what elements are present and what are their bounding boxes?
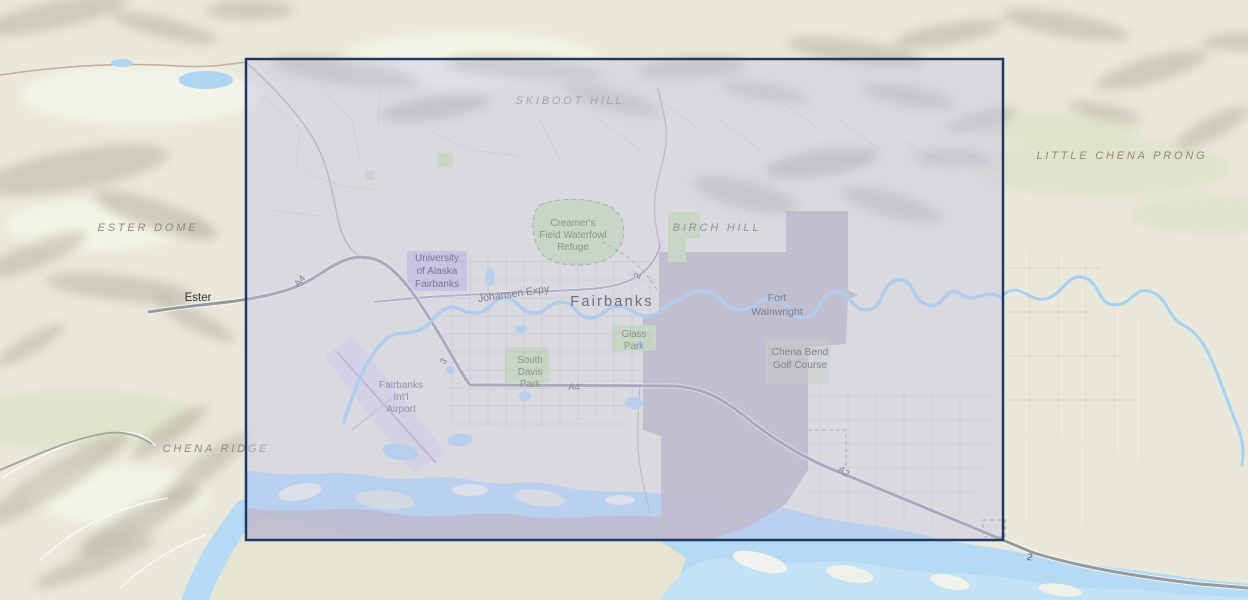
selection-extent[interactable] xyxy=(246,59,1003,540)
label-ester: Ester xyxy=(185,292,212,304)
label-ester-dome: ESTER DOME xyxy=(98,222,199,234)
map-canvas[interactable]: SKIBOOT HILL LITTLE CHENA PRONG ESTER DO… xyxy=(0,0,1248,600)
tanana-flats xyxy=(212,534,686,600)
label-little-chena-prong: LITTLE CHENA PRONG xyxy=(1036,150,1207,162)
map-viewport[interactable]: SKIBOOT HILL LITTLE CHENA PRONG ESTER DO… xyxy=(0,0,1248,600)
